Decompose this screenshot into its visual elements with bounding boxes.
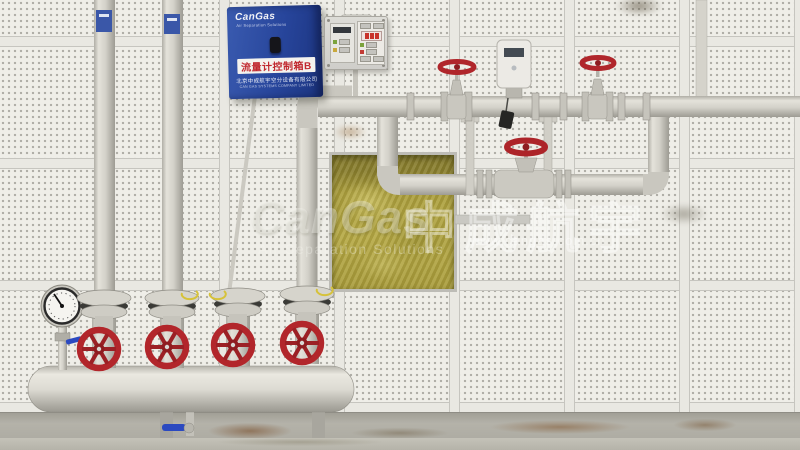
manifold-valve: [145, 290, 199, 368]
red-seg-display: [361, 31, 382, 41]
screw: [327, 19, 330, 22]
bypass-globe-valve: [477, 141, 571, 199]
flow-meter-control-box: CanGas Air Separation Solutions 流量计控制箱B …: [227, 5, 323, 99]
panel-key: [360, 23, 371, 29]
piping-layer: [0, 0, 800, 450]
panel-key: [366, 49, 377, 55]
company-name-en: CAN GAS SYSTEMS COMPANY LIMITED: [235, 83, 319, 89]
panel-key: [360, 56, 371, 62]
upper-globe-valve-2: [582, 58, 614, 122]
manifold-valve: [280, 286, 334, 364]
panel-key: [373, 23, 384, 29]
box-latch: [270, 37, 281, 53]
screw: [327, 64, 330, 67]
manifold-valve-group: [77, 286, 334, 368]
manifold-valve: [77, 290, 131, 368]
red-led: [360, 50, 364, 54]
green-led: [333, 40, 337, 44]
photo-industrial-gas-piping: CanGas Air Separation Solutions 流量计控制箱B …: [0, 0, 800, 450]
yellow-led: [333, 48, 337, 52]
panel-button-group: [357, 21, 385, 65]
panel-lcd: [333, 27, 351, 33]
panel-display-group: [330, 23, 355, 63]
control-box-label: 流量计控制箱B: [237, 57, 315, 74]
panel-key: [339, 47, 350, 53]
panel-key: [339, 39, 350, 45]
upper-flow-meter-run: [318, 93, 800, 120]
panel-key: [366, 42, 377, 48]
green-led: [360, 43, 364, 47]
manifold-valve: [210, 288, 265, 366]
manifold-header: [28, 366, 354, 438]
cangas-logo-tagline: Air Separation Solutions: [236, 21, 321, 28]
alarm-control-panel: [324, 16, 388, 70]
panel-key: [373, 56, 384, 62]
upper-globe-valve-1: [440, 62, 474, 122]
